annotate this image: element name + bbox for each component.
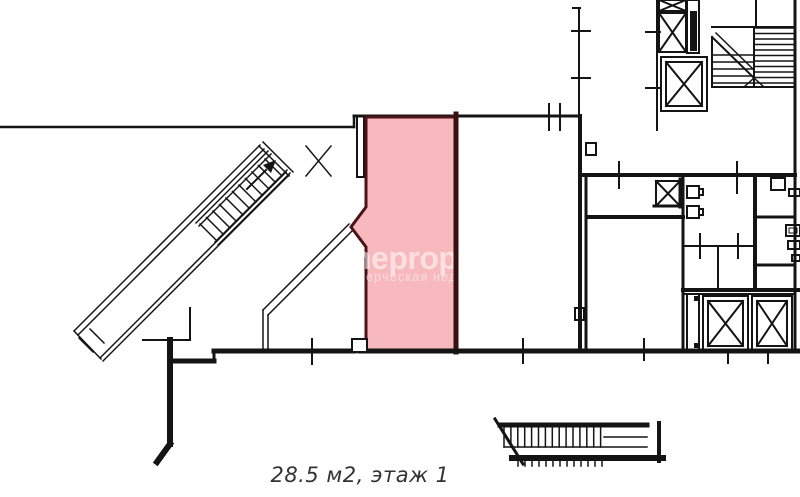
stair-treads-icon xyxy=(504,428,601,447)
elevator-shafts-bottom xyxy=(687,294,792,351)
left-staircase xyxy=(74,142,354,361)
shaft-wall-poche xyxy=(687,0,699,53)
elevator-shaft-icon xyxy=(654,179,682,207)
floorplan-drawing: neprope ерческая недвиж xyxy=(0,0,800,497)
top-wall xyxy=(0,104,580,130)
wall-fixture xyxy=(586,143,596,155)
elevator-shaft-icon xyxy=(659,13,686,52)
door-tick xyxy=(90,329,104,343)
elevator-shaft-icon xyxy=(659,0,686,11)
wall-opening xyxy=(352,339,367,352)
stair-tread xyxy=(220,205,237,222)
elevator-shaft-icon xyxy=(661,57,707,111)
door-tick xyxy=(79,338,93,352)
elevator-shaft-icon xyxy=(752,296,792,351)
top-right-staircase xyxy=(712,27,795,87)
stair-tread xyxy=(200,224,217,241)
watermark-subtitle: ерческая недвиж xyxy=(366,270,483,284)
stair-tread xyxy=(207,218,224,235)
stair-tread-box xyxy=(196,151,290,245)
stair-tread xyxy=(233,192,250,209)
bottom-staircase xyxy=(495,419,663,466)
stair-comb-icon xyxy=(518,461,602,466)
stair-tread xyxy=(213,211,230,228)
elevator-shaft-icon xyxy=(703,296,748,351)
floorplan-canvas: neprope ерческая недвиж 28.5 м2, этаж 1 xyxy=(0,0,800,497)
bottom-left-walls xyxy=(143,308,354,462)
door-x-icon xyxy=(306,146,331,176)
stair-tread xyxy=(226,198,243,215)
watermark: neprope ерческая недвиж xyxy=(352,240,483,284)
highlighted-unit xyxy=(351,117,455,351)
area-caption: 28.5 м2, этаж 1 xyxy=(250,463,470,487)
